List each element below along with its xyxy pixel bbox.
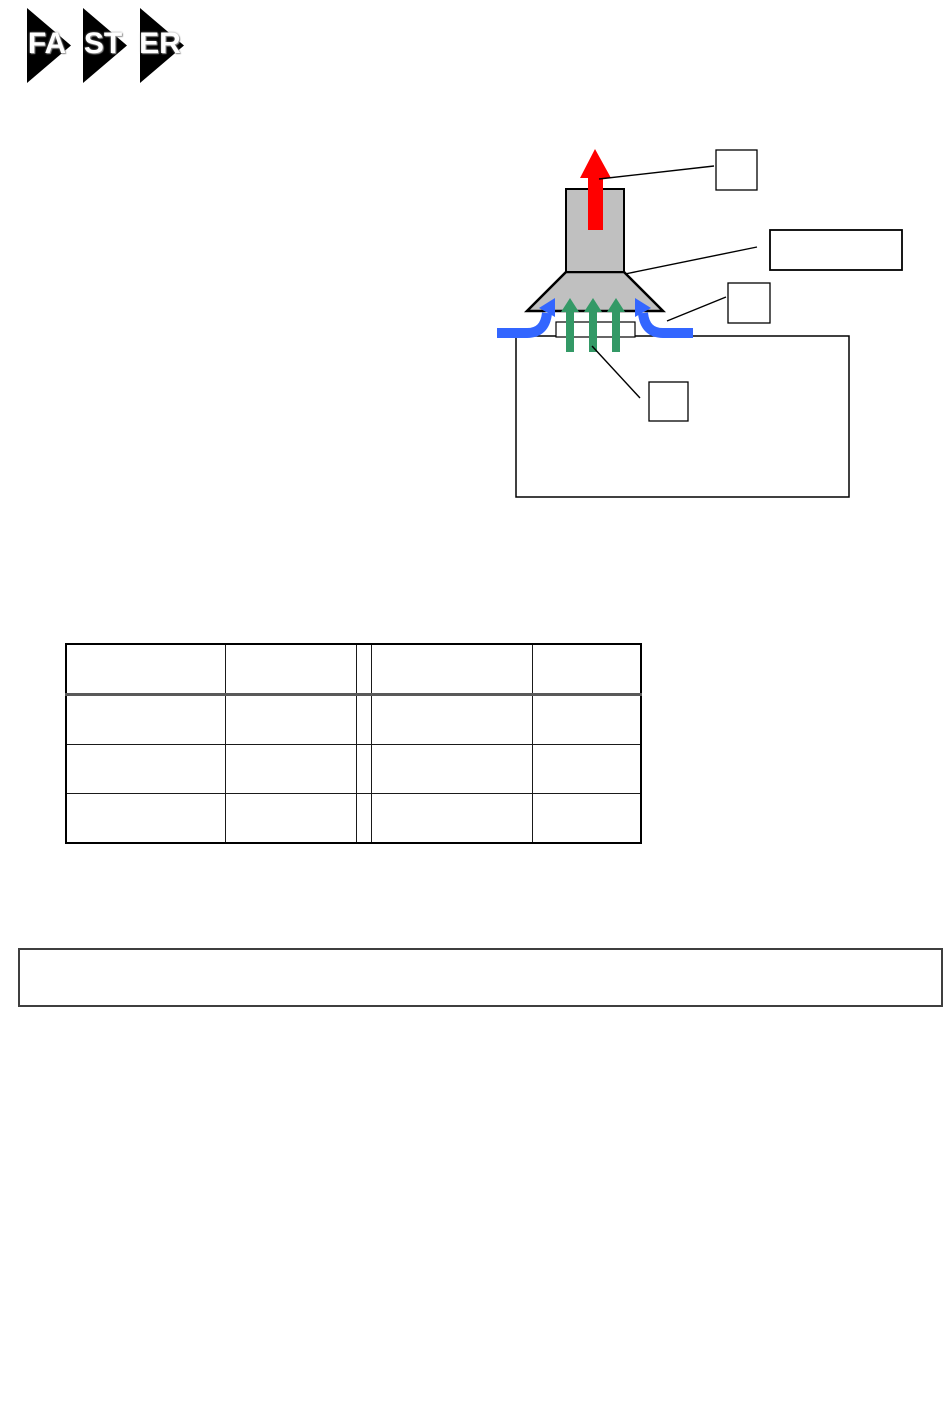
- plume-callout-box: [649, 382, 688, 421]
- air-curtain-callout-box: [728, 283, 770, 323]
- table-cell: [532, 695, 641, 745]
- exhaust-leader-line: [599, 166, 714, 179]
- table-cell: [66, 695, 225, 745]
- logo-letters-st: ST: [84, 27, 122, 61]
- table-cell: [225, 794, 356, 844]
- table-header-cell: [66, 644, 225, 695]
- spec-table: [65, 643, 642, 844]
- logo-letters-fa: FA: [28, 27, 66, 61]
- table-cell: [225, 745, 356, 794]
- fume-hood-diagram: [480, 140, 950, 520]
- air-curtain-right-arrow-icon: [643, 313, 693, 333]
- table-cell: [225, 695, 356, 745]
- air-curtain-leader-line: [667, 297, 726, 321]
- air-curtain-left-arrow-icon: [497, 313, 547, 333]
- table-cell: [66, 794, 225, 844]
- logo-triangle-2: ST: [83, 8, 127, 83]
- table-row: [66, 695, 641, 745]
- logo-triangle-3: ER: [140, 8, 184, 83]
- logo-letters-er: ER: [139, 27, 181, 61]
- table-cell: [532, 794, 641, 844]
- table-cell: [371, 695, 532, 745]
- table-spacer-cell: [356, 695, 371, 745]
- table-row: [66, 745, 641, 794]
- plume-arrows: [561, 298, 625, 352]
- table-cell: [66, 745, 225, 794]
- faster-logo: FA ST ER: [27, 8, 187, 84]
- table-cell: [371, 745, 532, 794]
- table-cell: [371, 794, 532, 844]
- note-box: [18, 948, 943, 1007]
- table-header-cell: [371, 644, 532, 695]
- table-spacer-cell: [356, 644, 371, 695]
- table-row: [66, 794, 641, 844]
- logo-triangle-1: FA: [27, 8, 71, 83]
- table-spacer-cell: [356, 745, 371, 794]
- canopy-leader-line: [625, 247, 757, 274]
- table-spacer-cell: [356, 794, 371, 844]
- canopy-callout-box: [770, 230, 902, 270]
- table-header-cell: [225, 644, 356, 695]
- table-header-row: [66, 644, 641, 695]
- document-page: FA ST ER: [0, 0, 950, 1409]
- exhaust-callout-box: [716, 150, 757, 190]
- table-header-cell: [532, 644, 641, 695]
- table-cell: [532, 745, 641, 794]
